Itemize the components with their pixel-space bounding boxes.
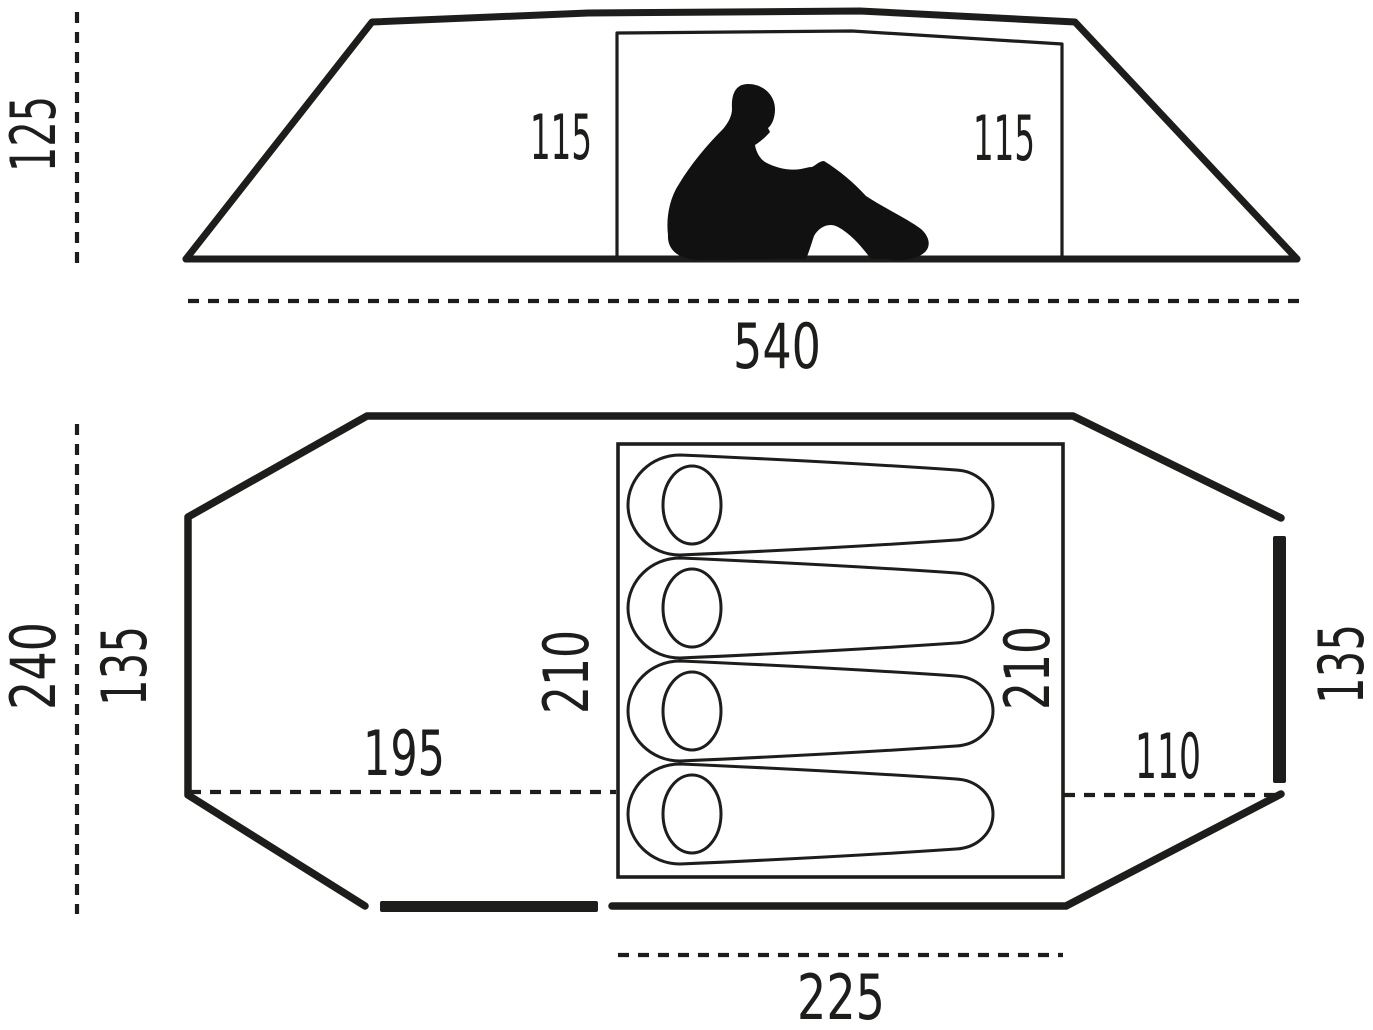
inner-length-right-label: 210: [991, 626, 1064, 710]
floor-plan: 240 135: [0, 416, 1373, 1030]
sleeping-bag: [628, 558, 993, 658]
inner-height-right-label: 115: [973, 102, 1035, 175]
door-bar-right: [1273, 536, 1286, 783]
width-label: 240: [0, 622, 70, 710]
inner-width-right-label: 135: [1305, 624, 1373, 704]
sleeping-bag: [628, 661, 993, 761]
inner-height-left-label: 115: [530, 101, 592, 174]
sleeping-bag-hood: [663, 775, 721, 853]
inner-bottom-label: 225: [797, 961, 885, 1030]
vestibule-rear-label: 110: [1135, 720, 1201, 793]
side-view: 125 115 115 540: [0, 11, 1300, 383]
inner-length-left-label: 210: [530, 630, 603, 714]
sleeping-bag-hood: [663, 466, 721, 544]
vestibule-front-label: 195: [363, 717, 445, 790]
person-silhouette: [667, 84, 928, 260]
sleeping-bag: [628, 455, 993, 555]
plan-outline-left: [188, 416, 1281, 906]
sleeping-bag-hood: [663, 569, 721, 647]
length-label: 540: [733, 310, 821, 383]
inner-width-left-label: 135: [88, 626, 161, 706]
sleeping-bag-hood: [663, 672, 721, 750]
height-label: 125: [0, 96, 70, 172]
tent-dimensions-diagram: 125 115 115 540 240 135: [0, 0, 1373, 1030]
sleeping-bag: [628, 764, 993, 864]
door-bar-bottom: [380, 901, 598, 912]
sleeping-bags: [628, 455, 993, 864]
